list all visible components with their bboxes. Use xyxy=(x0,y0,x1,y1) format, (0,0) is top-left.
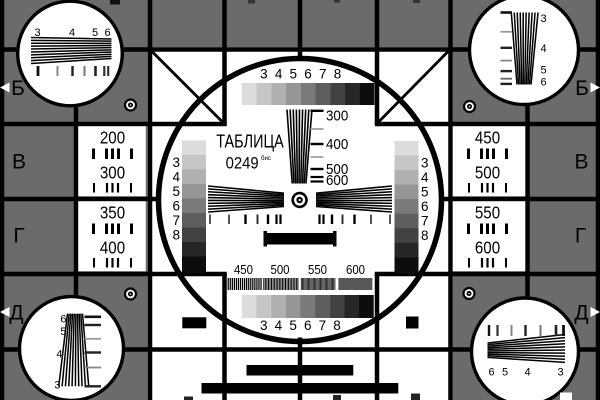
svg-text:4: 4 xyxy=(56,349,62,361)
svg-text:5: 5 xyxy=(541,65,547,77)
svg-text:400: 400 xyxy=(100,237,125,258)
svg-text:400: 400 xyxy=(326,135,348,152)
svg-text:600: 600 xyxy=(326,171,348,188)
svg-text:3: 3 xyxy=(541,13,547,25)
svg-text:ТАБЛИЦА: ТАБЛИЦА xyxy=(216,131,284,152)
svg-text:200: 200 xyxy=(100,127,125,148)
svg-text:6: 6 xyxy=(104,27,110,39)
svg-text:7: 7 xyxy=(421,214,429,229)
svg-text:Д: Д xyxy=(574,302,588,325)
svg-text:4: 4 xyxy=(275,67,283,82)
svg-text:5: 5 xyxy=(172,184,180,199)
svg-text:8: 8 xyxy=(421,228,429,243)
svg-text:бис: бис xyxy=(261,154,272,162)
svg-text:4: 4 xyxy=(69,27,75,39)
svg-text:6: 6 xyxy=(172,199,180,214)
svg-text:350: 350 xyxy=(100,202,125,223)
svg-text:Д: Д xyxy=(9,302,23,325)
svg-text:450: 450 xyxy=(475,127,500,148)
svg-text:8: 8 xyxy=(333,318,341,333)
svg-text:3: 3 xyxy=(421,156,429,171)
svg-text:8: 8 xyxy=(334,67,342,82)
svg-text:7: 7 xyxy=(319,318,327,333)
svg-text:5: 5 xyxy=(290,67,298,82)
svg-text:Г: Г xyxy=(13,225,24,248)
svg-text:5: 5 xyxy=(92,27,98,39)
svg-text:6: 6 xyxy=(488,367,494,379)
svg-text:5: 5 xyxy=(60,326,66,338)
svg-text:Б: Б xyxy=(575,77,589,100)
svg-text:6: 6 xyxy=(304,67,312,82)
svg-text:3: 3 xyxy=(557,367,563,379)
svg-text:5: 5 xyxy=(421,185,429,200)
svg-text:7: 7 xyxy=(319,67,327,82)
svg-text:Г: Г xyxy=(575,225,586,248)
svg-text:5: 5 xyxy=(502,367,508,379)
svg-text:600: 600 xyxy=(346,262,365,277)
svg-text:550: 550 xyxy=(308,262,327,277)
svg-text:450: 450 xyxy=(234,262,253,277)
svg-text:550: 550 xyxy=(475,202,500,223)
svg-text:6: 6 xyxy=(541,77,547,89)
svg-text:0249: 0249 xyxy=(226,155,259,173)
svg-text:4: 4 xyxy=(421,170,429,185)
svg-text:3: 3 xyxy=(54,380,60,392)
svg-text:3: 3 xyxy=(260,318,268,333)
svg-text:500: 500 xyxy=(475,162,500,183)
svg-text:4: 4 xyxy=(524,367,530,379)
svg-text:5: 5 xyxy=(289,318,297,333)
svg-text:7: 7 xyxy=(172,213,180,228)
svg-text:В: В xyxy=(12,151,26,174)
svg-text:500: 500 xyxy=(270,262,289,277)
svg-text:В: В xyxy=(574,151,588,174)
svg-text:300: 300 xyxy=(100,162,125,183)
svg-text:4: 4 xyxy=(541,43,547,55)
svg-text:4: 4 xyxy=(172,170,180,185)
svg-text:300: 300 xyxy=(326,107,348,124)
svg-text:3: 3 xyxy=(34,27,40,39)
svg-text:3: 3 xyxy=(260,67,268,82)
svg-text:Б: Б xyxy=(11,77,25,100)
svg-text:3: 3 xyxy=(172,155,180,170)
svg-text:6: 6 xyxy=(304,318,312,333)
svg-text:6: 6 xyxy=(421,199,429,214)
svg-text:4: 4 xyxy=(275,318,283,333)
svg-text:6: 6 xyxy=(60,314,66,326)
svg-text:8: 8 xyxy=(172,228,180,243)
svg-text:600: 600 xyxy=(475,237,500,258)
